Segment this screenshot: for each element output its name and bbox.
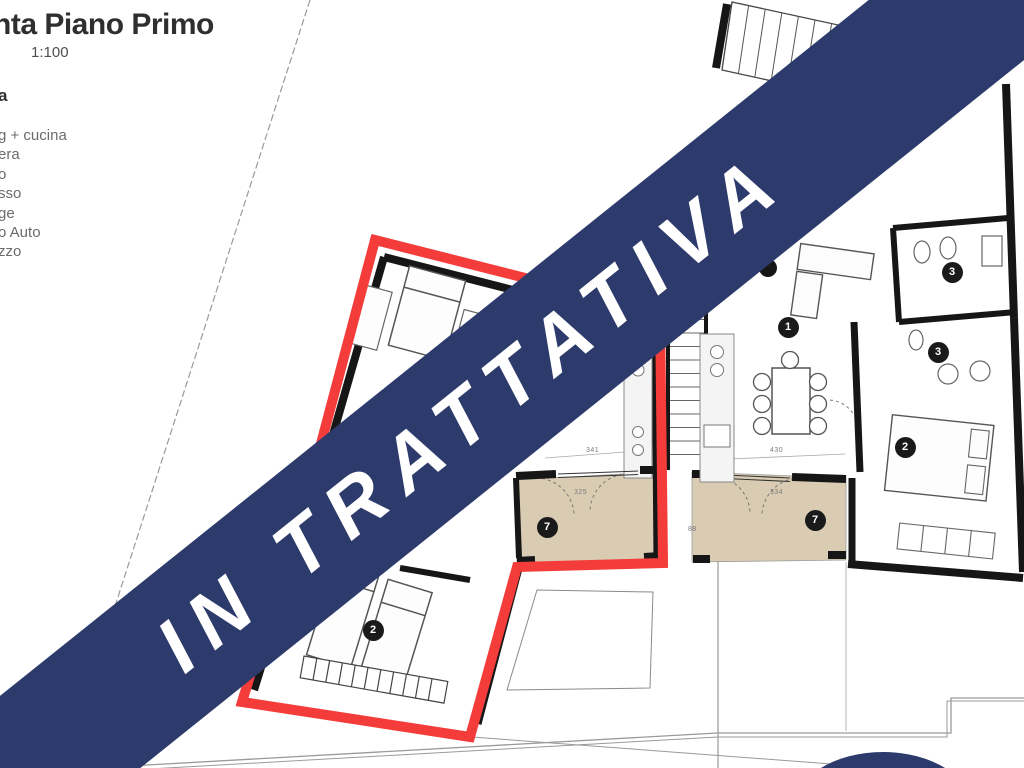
dimension-label: 325: [574, 489, 587, 496]
room-marker-3: 3: [942, 262, 963, 283]
room-marker-1: 1: [778, 317, 799, 338]
legend-item: g + cucina: [0, 126, 67, 145]
room-marker-3: 3: [928, 342, 949, 363]
dimension-label: 88: [688, 526, 697, 533]
legend-item: ge: [0, 204, 67, 223]
legend-item: o: [0, 165, 67, 184]
corner-badge: [793, 752, 973, 768]
legend-item: sso: [0, 184, 67, 203]
dimension-label: 430: [770, 447, 783, 454]
room-marker-7: 7: [537, 517, 558, 538]
legend-list: g + cucina era o sso ge o Auto zzo: [0, 126, 67, 262]
floorplan-page: nta Piano Primo 1:100 a g + cucina era o…: [0, 0, 1024, 768]
page-title: nta Piano Primo: [0, 8, 214, 42]
dimension-label: 334: [770, 489, 783, 496]
legend-item: era: [0, 145, 67, 164]
balconies: [516, 472, 846, 565]
scale-label: 1:100: [31, 44, 69, 61]
room-marker-7: 7: [805, 510, 826, 531]
room-marker-2: 2: [363, 620, 384, 641]
legend-heading: a: [0, 86, 7, 106]
legend-item: o Auto: [0, 223, 67, 242]
legend-item: zzo: [0, 242, 67, 261]
dimension-label: 341: [586, 447, 599, 454]
room-marker-2: 2: [895, 437, 916, 458]
